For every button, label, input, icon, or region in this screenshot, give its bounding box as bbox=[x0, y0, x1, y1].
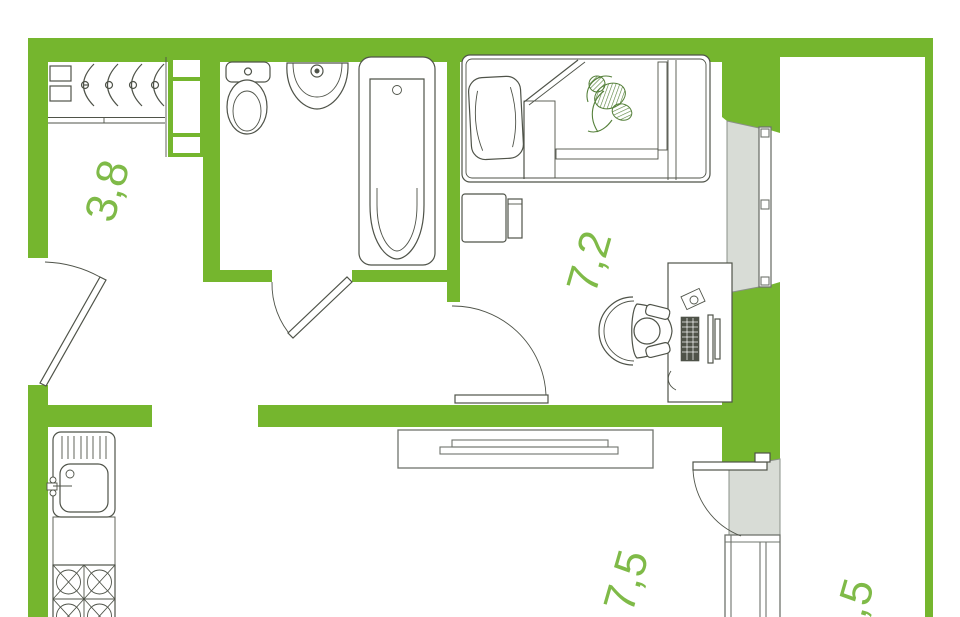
bathroom-sink-icon bbox=[287, 63, 348, 109]
bathroom-door bbox=[272, 277, 352, 338]
head bbox=[634, 318, 660, 344]
entrance-door bbox=[40, 262, 106, 386]
nightstand-icon bbox=[462, 194, 522, 242]
keyboard-icon bbox=[681, 317, 699, 361]
bed-icon bbox=[462, 55, 710, 182]
floor-plan: 3,8 7,2 7,5 ,5 bbox=[0, 0, 960, 617]
pillow-icon bbox=[468, 76, 524, 161]
stove-icon bbox=[53, 565, 115, 617]
bedroom-door bbox=[452, 306, 548, 403]
kitchen-counter bbox=[53, 517, 115, 565]
bathtub-icon bbox=[359, 57, 435, 265]
monitor-icon bbox=[708, 315, 713, 363]
wardrobe-icon bbox=[398, 430, 653, 468]
desk-icon bbox=[668, 263, 732, 402]
kitchen-sink-icon bbox=[47, 432, 115, 517]
bedroom-window-icon bbox=[727, 121, 771, 293]
living-room-window-icon bbox=[725, 459, 780, 617]
desk-chair-with-person-icon bbox=[599, 297, 672, 365]
ventilation-shaft-icon bbox=[168, 55, 205, 157]
floorplan-canvas bbox=[0, 0, 960, 617]
toilet-icon bbox=[226, 62, 270, 134]
coat-rack-icon bbox=[48, 57, 166, 157]
